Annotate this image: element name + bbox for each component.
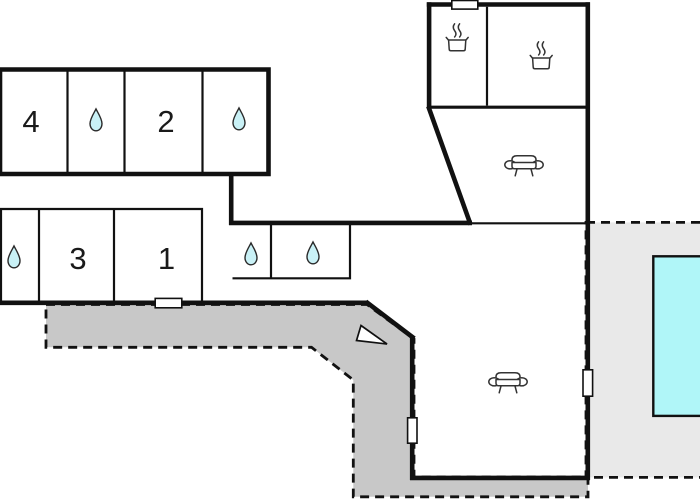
water-drop-icon bbox=[307, 242, 319, 264]
room-label-bedroom-3: 3 bbox=[39, 239, 117, 279]
room-label-bedroom-4: 4 bbox=[0, 102, 62, 142]
swimming-pool bbox=[653, 256, 700, 416]
cooking-pot-icon bbox=[446, 24, 468, 51]
window-door-marker-south bbox=[155, 298, 182, 307]
window-door-marker-east bbox=[583, 370, 593, 396]
floor-plan: 4 2 3 1 bbox=[0, 0, 700, 500]
room-label-bedroom-1: 1 bbox=[122, 239, 211, 279]
water-drop-icon bbox=[8, 246, 20, 268]
sofa-icon bbox=[505, 156, 543, 176]
terrace-area bbox=[46, 305, 588, 497]
wall-diagonal-hall bbox=[428, 106, 470, 224]
water-drop-icon bbox=[90, 109, 102, 131]
water-drop-icon bbox=[245, 243, 257, 265]
sofa-icon bbox=[489, 373, 527, 393]
window-door-marker-west bbox=[408, 418, 417, 443]
room-label-bedroom-2: 2 bbox=[127, 102, 205, 142]
cooking-pot-icon bbox=[530, 42, 552, 69]
window-door-marker-north bbox=[452, 1, 478, 10]
water-drop-icon bbox=[233, 108, 245, 130]
